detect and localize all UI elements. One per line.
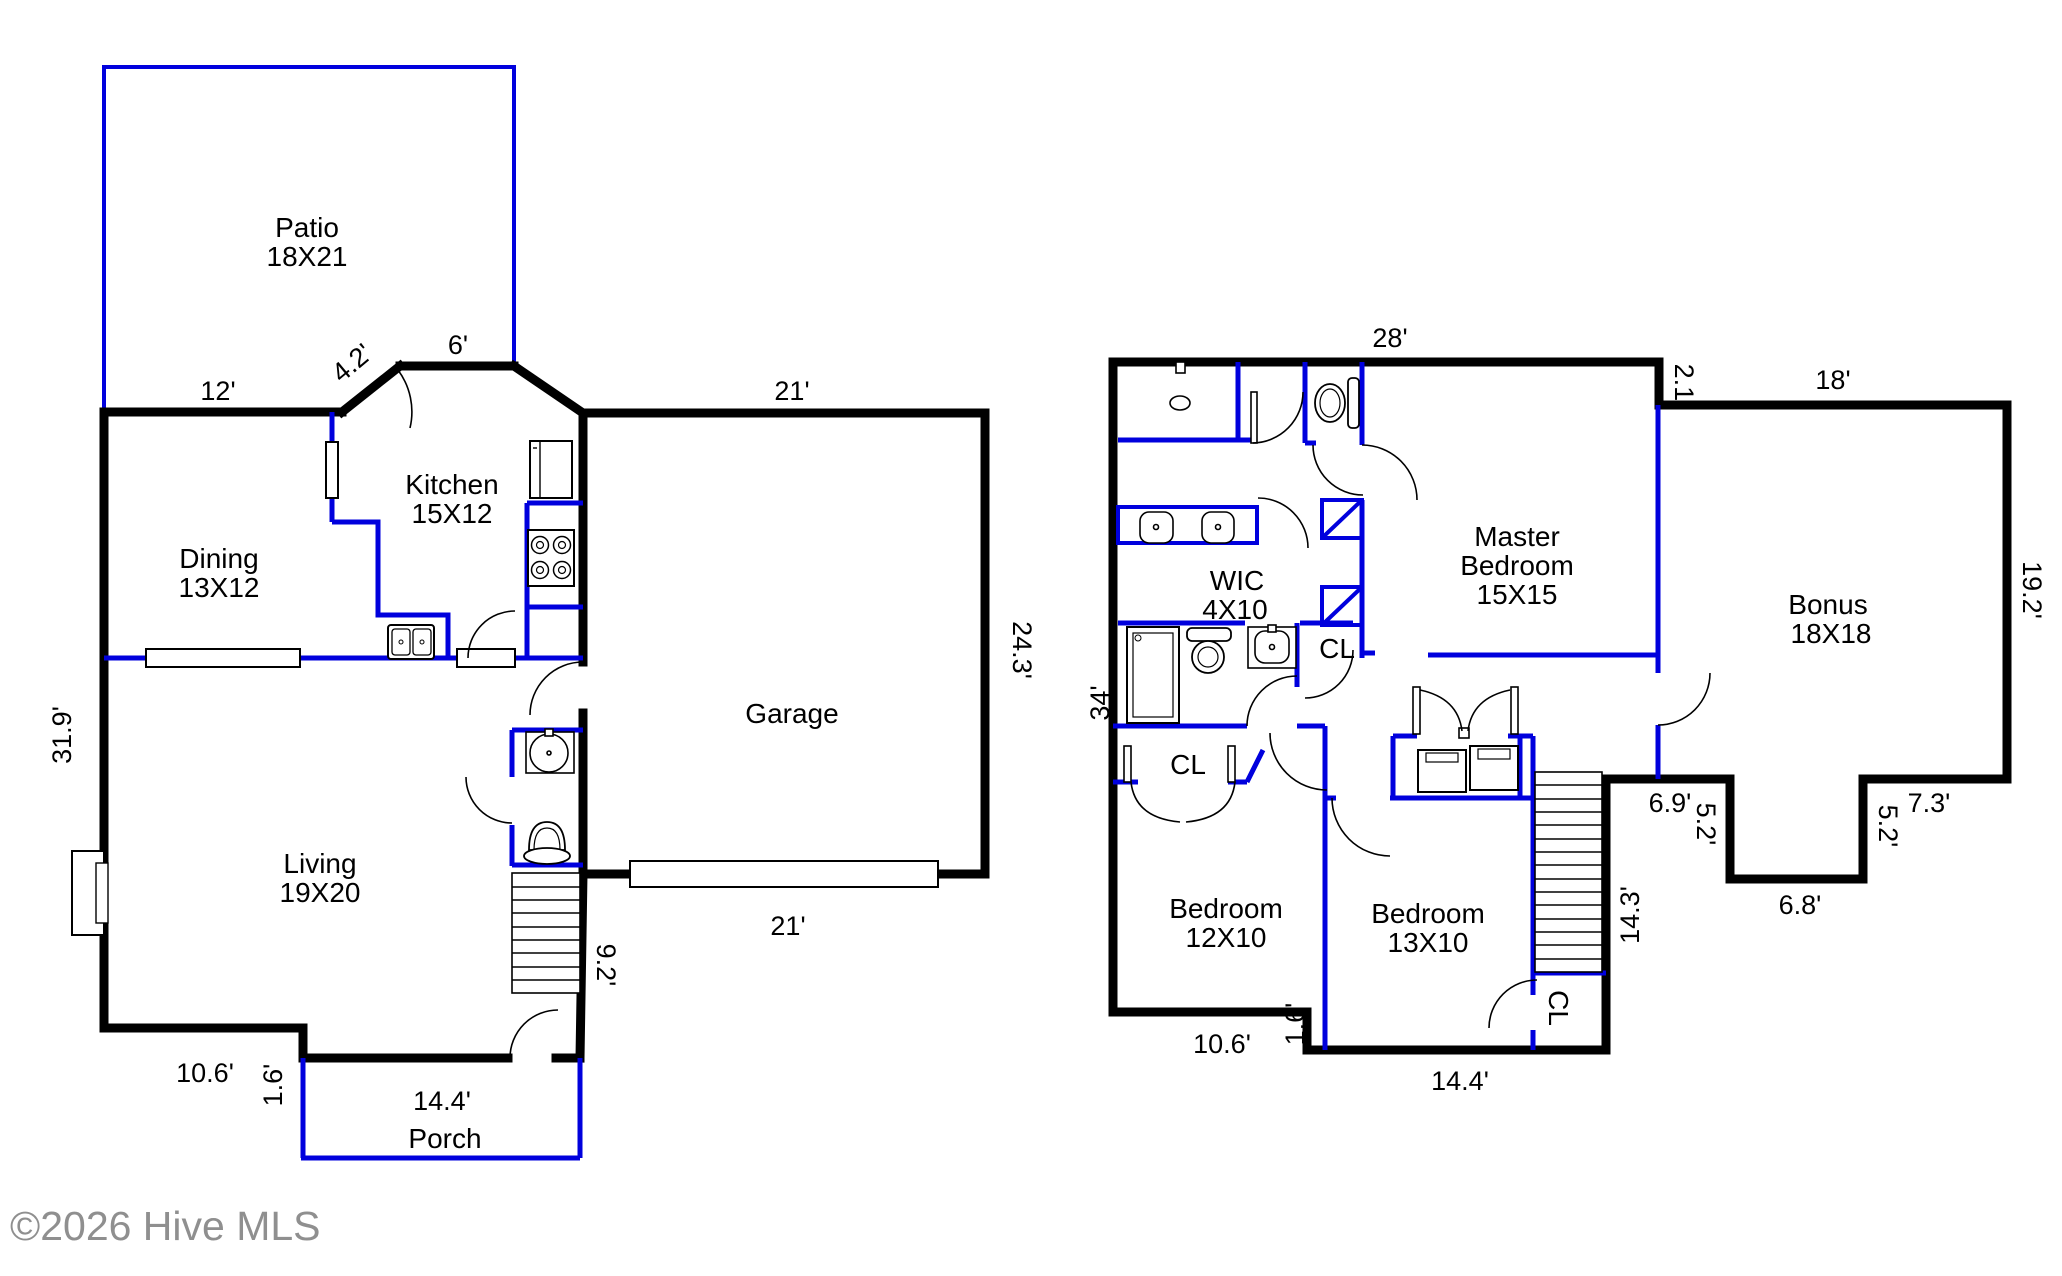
room-size-bedroom12: 12X10 xyxy=(1186,922,1267,953)
dim-f2-bottom-left-10-6: 10.6' xyxy=(1193,1029,1251,1059)
room-size-master: 15X15 xyxy=(1477,579,1558,610)
second-floor-plan: Master Bedroom 15X15 WIC 4X10 Bonus 18X1… xyxy=(1085,323,2047,1096)
powder-sink-icon xyxy=(526,729,574,773)
bedroom13-door-arc xyxy=(1332,798,1390,856)
staircase-second-floor xyxy=(1535,772,1602,972)
room-size-bonus: 18X18 xyxy=(1791,618,1872,649)
dim-bonus-right-19-2: 19.2' xyxy=(2017,561,2047,619)
dim-patio-door-4-2: 4.2' xyxy=(326,338,378,388)
dim-top-mid-6: 6' xyxy=(448,330,468,360)
room-size-kitchen: 15X12 xyxy=(412,498,493,529)
dim-notch-7-3: 7.3' xyxy=(1908,788,1951,818)
dim-bonus-top-18: 18' xyxy=(1815,365,1850,395)
room-label-dining: Dining xyxy=(179,543,258,574)
room-label-living: Living xyxy=(283,848,356,879)
stairs-closet-door-arc xyxy=(1489,980,1537,1028)
dim-garage-door-21: 21' xyxy=(770,911,805,941)
dim-bottom-left-10-6: 10.6' xyxy=(176,1058,234,1088)
dim-garage-top-21: 21' xyxy=(774,376,809,406)
bedroom12-closet-left-leaf xyxy=(1124,746,1131,782)
master-closet-right-leaf xyxy=(1511,687,1518,734)
closet-label-stairs: CL xyxy=(1543,990,1574,1026)
first-floor-plan: Patio 18X21 Dining 13X12 Kitchen 15X12 G… xyxy=(47,65,1037,1158)
dim-notch-right-5-2: 5.2' xyxy=(1873,805,1903,848)
floorplan-drawing: Patio 18X21 Dining 13X12 Kitchen 15X12 G… xyxy=(0,0,2062,1276)
closet-label-bedroom12: CL xyxy=(1170,749,1206,780)
room-size-patio: 18X21 xyxy=(267,241,348,272)
stove-icon xyxy=(528,530,574,586)
tub-drain-icon xyxy=(1170,396,1190,410)
dim-garage-right-24-3: 24.3' xyxy=(1007,621,1037,679)
toilet-room-door-arc xyxy=(1313,445,1363,495)
dim-top-left-12: 12' xyxy=(200,376,235,406)
bedroom12-closet-right-leaf xyxy=(1228,746,1235,782)
room-label-bedroom13: Bedroom xyxy=(1371,898,1485,929)
hall-bath-door-arc xyxy=(1247,676,1297,726)
double-vanity-sink-icons xyxy=(1140,512,1234,543)
room-size-living: 19X20 xyxy=(280,877,361,908)
dim-f2-bottom-14-4: 14.4' xyxy=(1431,1066,1489,1096)
dim-f2-step-2-1: 2.1' xyxy=(1669,364,1699,407)
room-label-porch: Porch xyxy=(408,1123,481,1154)
powder-door-arc xyxy=(466,777,512,823)
closet-dresser-icons xyxy=(1418,746,1518,792)
bedroom12-closet-left-arc xyxy=(1131,782,1180,822)
copyright-watermark: ©2026 Hive MLS xyxy=(10,1203,321,1249)
dining-living-opening xyxy=(146,649,300,667)
room-size-bedroom13: 13X10 xyxy=(1388,927,1469,958)
bedroom12-door-arc xyxy=(1270,733,1327,790)
room-size-dining: 13X12 xyxy=(179,572,260,603)
tub-room-icons xyxy=(1170,362,1190,410)
kitchen-sink-icon xyxy=(388,625,434,659)
patio-door-arc xyxy=(398,370,412,428)
dining-side-window xyxy=(326,442,338,498)
room-label-bonus: Bonus xyxy=(1788,589,1867,620)
dim-notch-6-9: 6.9' xyxy=(1649,788,1692,818)
front-door-arc xyxy=(510,1010,558,1058)
dim-porch-14-4: 14.4' xyxy=(413,1086,471,1116)
dim-stairs-9-2: 9.2' xyxy=(591,944,621,987)
room-label-master-line2: Bedroom xyxy=(1460,550,1574,581)
kitchen-living-opening xyxy=(457,649,515,667)
hall-bath-toilet-icon xyxy=(1187,628,1231,673)
garage-door xyxy=(630,861,938,887)
master-closet-left-arc xyxy=(1420,690,1462,731)
room-label-kitchen: Kitchen xyxy=(405,469,498,500)
closet-shelf-icons xyxy=(1322,500,1362,625)
dim-bottom-step-1-6: 1.6' xyxy=(258,1064,288,1107)
room-size-wic: 4X10 xyxy=(1202,594,1267,625)
bonus-door-arc xyxy=(1658,673,1710,725)
dim-notch-left-5-2: 5.2' xyxy=(1691,803,1721,846)
room-label-bedroom12: Bedroom xyxy=(1169,893,1283,924)
room-label-patio: Patio xyxy=(275,212,339,243)
staircase-first-floor xyxy=(512,873,580,993)
powder-toilet-icon xyxy=(524,822,570,864)
bedroom12-closet-right-arc xyxy=(1186,782,1235,822)
refrigerator-icon xyxy=(530,441,572,498)
dim-f2-top-28: 28' xyxy=(1372,323,1407,353)
dim-f2-stairs-14-3: 14.3' xyxy=(1615,886,1645,944)
dim-left-31-9: 31.9' xyxy=(47,706,77,764)
vanity-hall-door-arc xyxy=(1258,498,1308,548)
water-closet-toilet-icon xyxy=(1315,378,1359,428)
room-label-master-line1: Master xyxy=(1474,521,1560,552)
tub-faucet-icon xyxy=(1176,362,1185,373)
master-door-arc xyxy=(1362,445,1417,500)
tub-hall-door-arc xyxy=(1253,392,1303,443)
hall-bath-sink-icon xyxy=(1248,625,1296,668)
room-label-wic: WIC xyxy=(1210,565,1264,596)
floorplan-page: Patio 18X21 Dining 13X12 Kitchen 15X12 G… xyxy=(0,0,2062,1276)
tub-hall-door-leaf xyxy=(1251,392,1257,443)
master-closet-left-leaf xyxy=(1413,687,1420,734)
closet-label-hall: CL xyxy=(1319,633,1355,664)
master-closet-right-arc xyxy=(1468,690,1510,731)
first-floor-windows xyxy=(146,442,938,887)
dim-f2-left-34: 34' xyxy=(1085,685,1115,720)
fireplace-icon xyxy=(72,851,108,935)
garage-entry-door-arc xyxy=(530,662,583,715)
dim-notch-6-8: 6.8' xyxy=(1779,890,1822,920)
dim-f2-step-1-6: 1.6' xyxy=(1280,1003,1310,1046)
shower-icon xyxy=(1127,627,1179,723)
room-label-garage: Garage xyxy=(745,698,838,729)
